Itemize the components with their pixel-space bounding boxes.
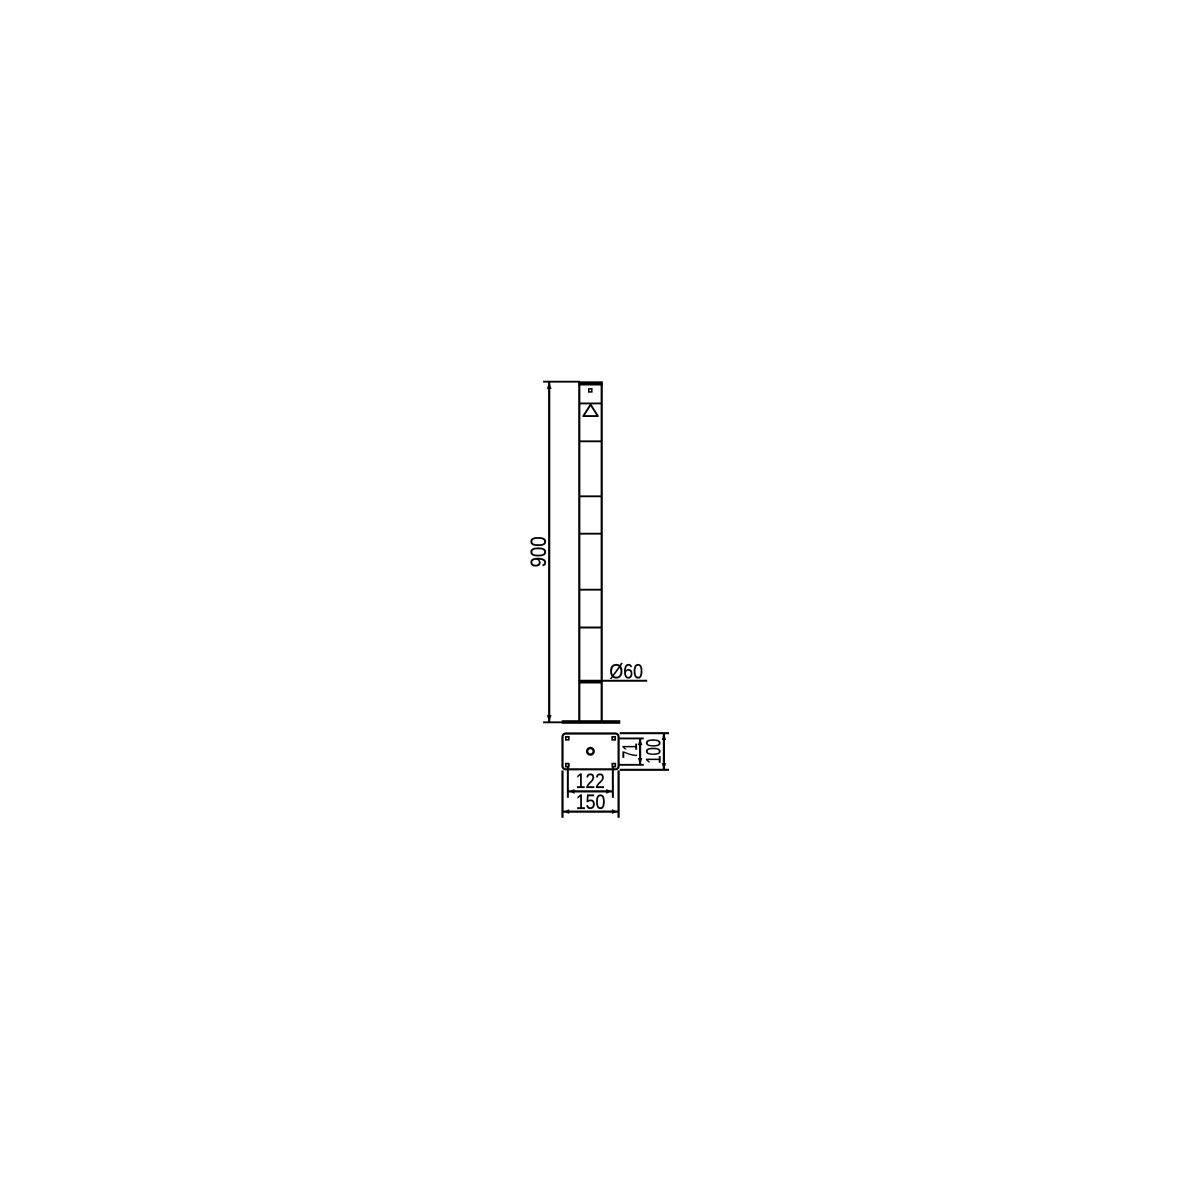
svg-text:150: 150	[576, 791, 606, 814]
svg-text:71: 71	[619, 743, 642, 759]
svg-text:100: 100	[643, 739, 666, 764]
svg-text:900: 900	[526, 536, 551, 567]
svg-text:122: 122	[576, 770, 605, 793]
svg-text:Ø60: Ø60	[609, 660, 643, 683]
